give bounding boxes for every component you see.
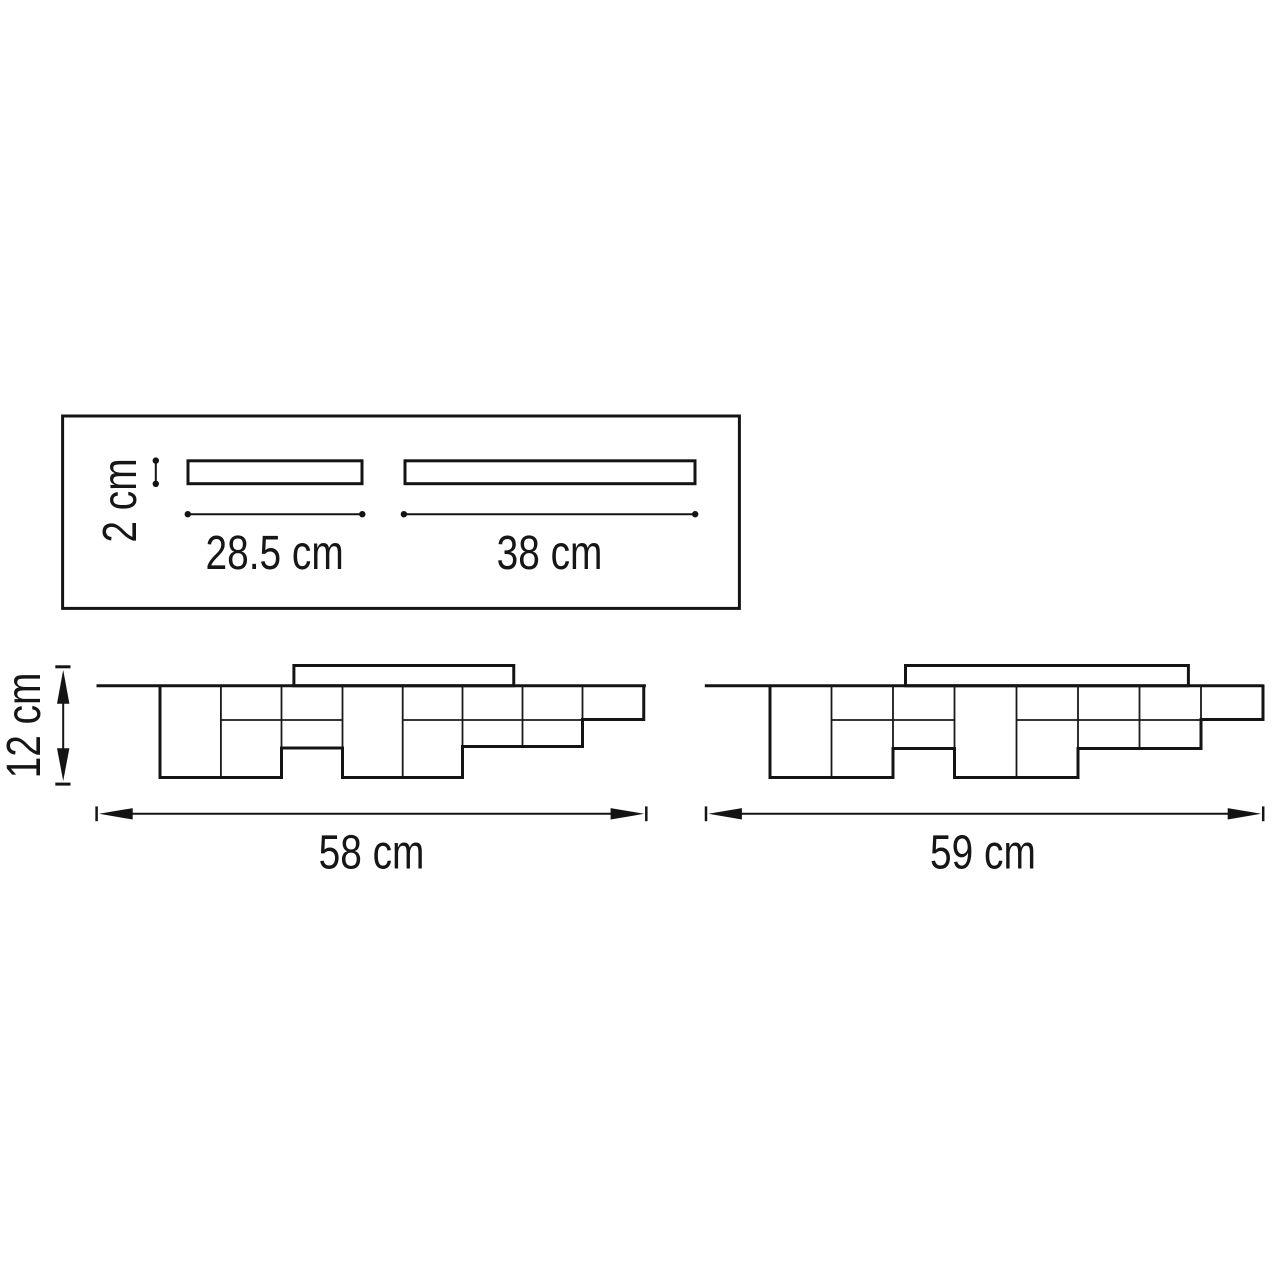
svg-text:28.5 cm: 28.5 cm	[205, 526, 343, 580]
svg-text:12 cm: 12 cm	[0, 673, 51, 779]
svg-text:38 cm: 38 cm	[497, 526, 603, 580]
svg-text:59 cm: 59 cm	[930, 826, 1036, 880]
svg-text:2 cm: 2 cm	[93, 458, 147, 542]
svg-text:58 cm: 58 cm	[319, 826, 425, 880]
